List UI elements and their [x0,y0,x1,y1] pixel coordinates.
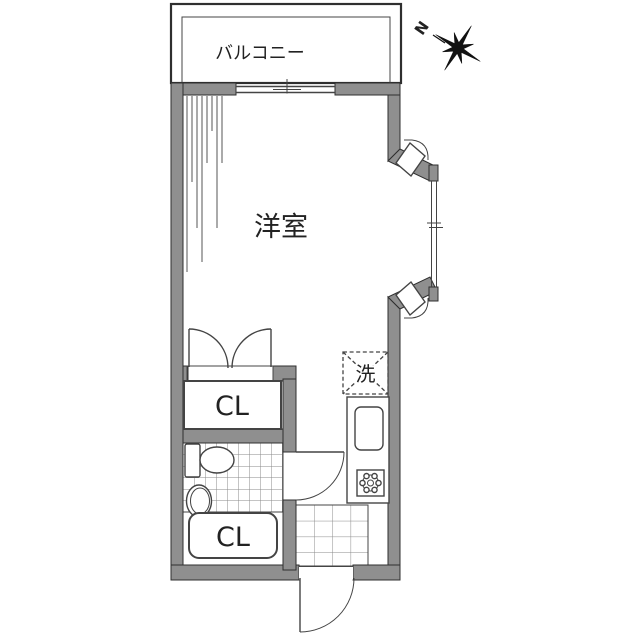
kitchen-sink [355,407,383,450]
compass-rose-icon [422,12,493,83]
closet-door-arc-right [232,329,271,368]
balcony-label: バルコニー [215,43,305,64]
bay-window [388,140,443,318]
closet-upper-label: CL [215,391,249,422]
wall-closet-bottom [183,429,296,443]
laundry-label: 洗 [356,362,376,386]
entrance [299,567,354,633]
entrance-opening [299,567,353,580]
kitchen: 洗 [343,352,389,503]
curtain-lines [187,96,222,272]
western-room-label: 洋室 [254,212,308,243]
toilet-tank [185,444,200,477]
closet-door-arc-left [189,329,228,368]
floor-plan-page: バルコニー N [0,0,639,640]
bay-frame-bottom [429,287,438,301]
wall-bottom-left [171,565,299,580]
balcony: バルコニー [171,4,401,83]
laundry-space: 洗 [343,352,388,394]
closet-lower-label: CL [216,522,250,553]
western-room: 洋室 [187,79,335,272]
wall-top-right [335,83,400,95]
wall-right-lower [388,297,400,580]
toilet-bowl [200,447,234,473]
floor-plan: バルコニー N [0,0,639,640]
entrance-door-arc [300,578,354,632]
compass: N [411,12,494,83]
bathroom-door-arc [296,452,344,500]
wall-middle-upper [283,379,296,452]
wall-bottom-right [353,565,400,580]
closet-upper: CL [184,329,281,429]
compass-north-label: N [411,18,433,39]
wall-middle-lower [283,500,296,570]
closet-upper-opening [187,366,273,381]
wall-left [171,83,183,580]
bay-frame-top [429,165,438,181]
entrance-tile-floor [296,505,368,566]
